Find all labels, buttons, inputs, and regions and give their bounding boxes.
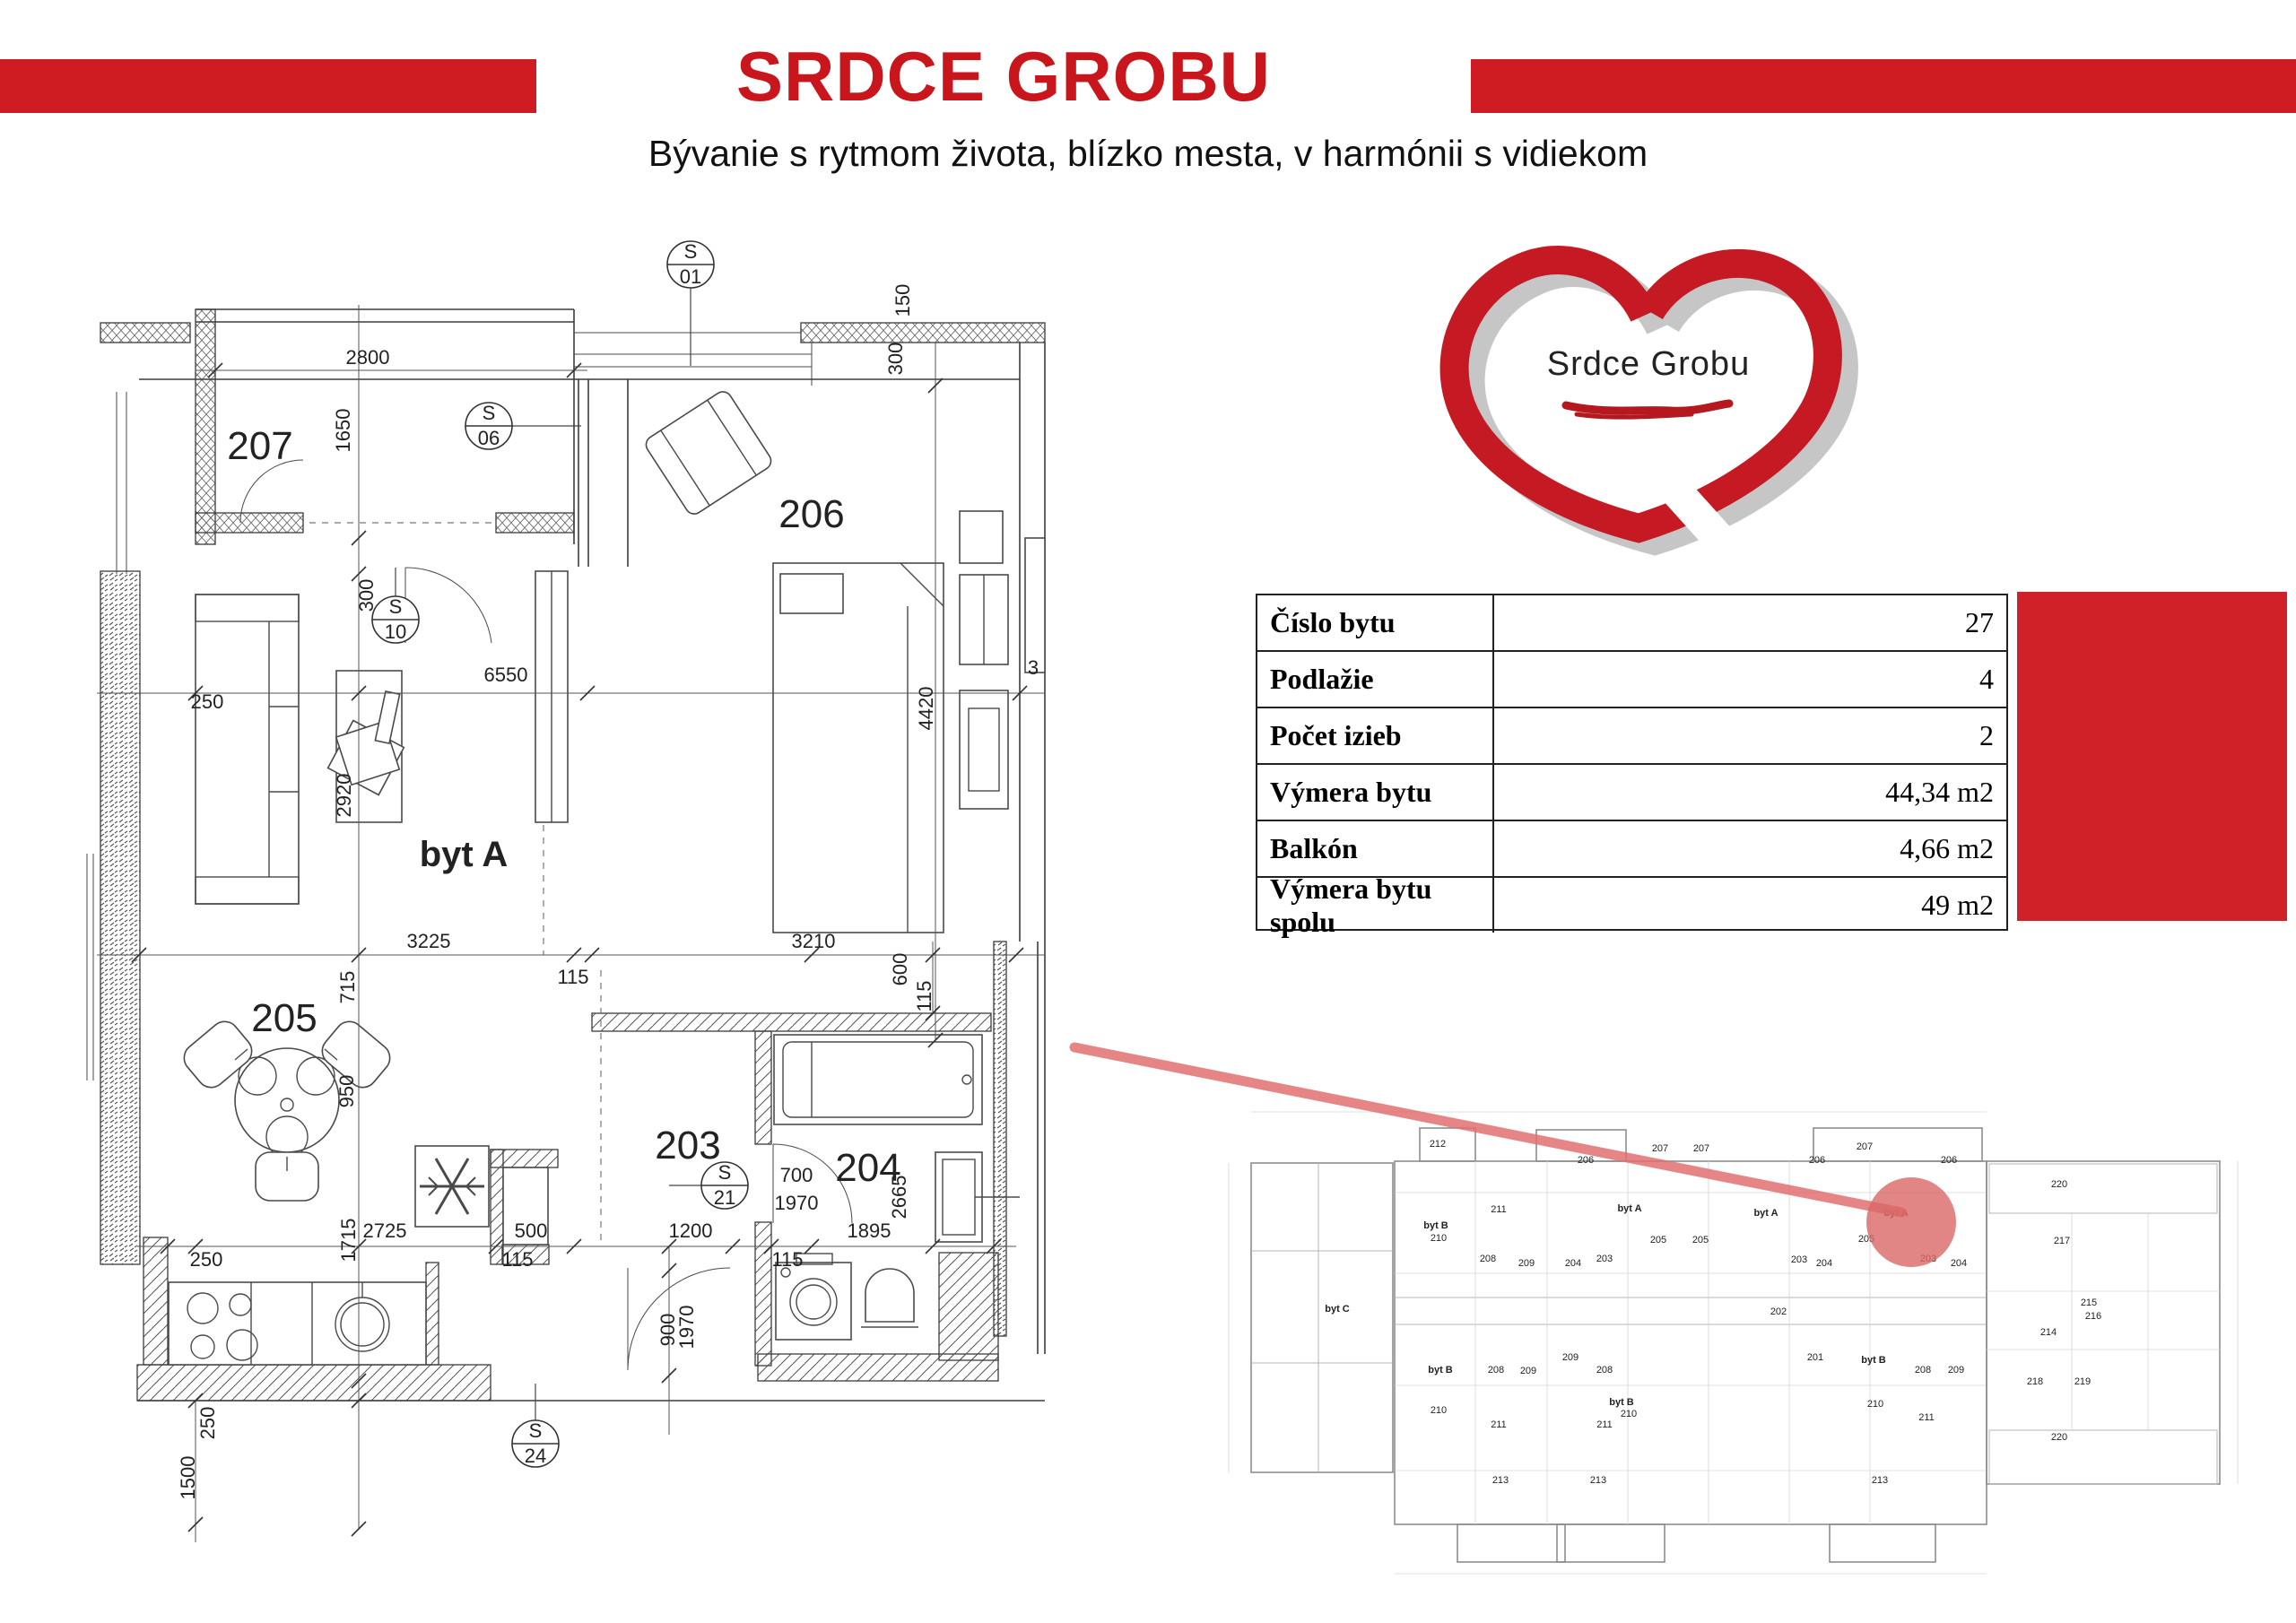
section-symbol-letter: S	[718, 1161, 732, 1184]
heart-logo: Srdce Grobu	[1455, 260, 1844, 560]
dimension-label-vertical: 1650	[332, 409, 354, 453]
dimension-label: 500	[515, 1219, 548, 1242]
dimension-label: 1895	[848, 1219, 891, 1242]
overview-room-label: 206	[1941, 1155, 1957, 1166]
section-symbol-letter: S	[684, 240, 698, 263]
dimension-label-vertical: 2920	[333, 774, 355, 818]
dimension-label: 2800	[346, 346, 390, 369]
overview-room-label: 210	[1431, 1405, 1447, 1416]
dimension-label: 3210	[792, 930, 836, 952]
dimension-label-vertical: 1715	[337, 1219, 360, 1263]
section-symbol-letter: S	[389, 595, 403, 618]
drawings-layer: 207206205203204byt A 2800655025032251153…	[0, 0, 2296, 1623]
overview-room-label: 202	[1770, 1306, 1787, 1317]
section-symbol-letter: S	[483, 402, 496, 424]
dimension-label-vertical: 115	[913, 980, 935, 1011]
overview-room-label: 209	[1520, 1366, 1536, 1376]
logo-underline	[1566, 404, 1729, 411]
overview-room-label: 210	[1621, 1409, 1637, 1419]
overview-room-label: 220	[2051, 1432, 2067, 1443]
overview-room-label: 213	[1492, 1475, 1509, 1486]
overview-room-label: 208	[1480, 1254, 1496, 1264]
overview-room-label: 216	[2085, 1311, 2101, 1322]
overview-room-label: 213	[1590, 1475, 1606, 1486]
overview-room-label: 211	[1491, 1419, 1507, 1430]
overview-room-label: 203	[1791, 1254, 1807, 1265]
dimension-label: 1200	[669, 1219, 713, 1242]
room-number-label: 207	[227, 424, 292, 468]
overview-room-label: 208	[1915, 1365, 1931, 1376]
section-symbol-letter: S	[529, 1419, 543, 1442]
overview-room-label: 206	[1809, 1155, 1825, 1166]
dimension-label-vertical: 1500	[177, 1456, 199, 1500]
dimension-label-vertical: 950	[335, 1075, 358, 1108]
section-symbol-number: 21	[714, 1186, 735, 1209]
dining-table	[178, 1016, 396, 1201]
bed	[773, 563, 944, 933]
overview-room-label: 214	[2040, 1327, 2057, 1338]
overview-room-label: byt A	[1753, 1208, 1778, 1219]
dimension-label-vertical: 300	[355, 579, 378, 612]
section-symbol-number: 24	[525, 1445, 546, 1467]
dimension-label: 115	[557, 966, 588, 988]
dimension-label: 3	[1028, 656, 1039, 679]
overview-room-label: 204	[1951, 1258, 1967, 1269]
overview-room-label: 207	[1857, 1141, 1873, 1152]
overview-room-label: 203	[1596, 1254, 1613, 1264]
overview-room-label: 207	[1693, 1143, 1709, 1154]
dimension-label-vertical: 715	[336, 971, 359, 1004]
overview-room-label: 212	[1430, 1139, 1446, 1150]
logo-text: Srdce Grobu	[1547, 345, 1750, 383]
dimension-label: 115	[501, 1248, 533, 1271]
overview-room-label: 211	[1596, 1419, 1613, 1430]
dimension-label-vertical: 250	[196, 1407, 219, 1440]
dimension-label: 1970	[775, 1192, 819, 1214]
overview-room-label: 211	[1491, 1204, 1507, 1215]
section-symbol-number: 10	[385, 621, 406, 643]
overview-room-label: byt B	[1423, 1220, 1448, 1231]
overview-room-label: 208	[1596, 1365, 1613, 1376]
main-floor-plan: 207206205203204byt A 2800655025032251153…	[87, 240, 1045, 1542]
fridge	[415, 1146, 489, 1227]
dimension-label-vertical: 2665	[888, 1176, 910, 1219]
section-symbol-number: 01	[680, 265, 701, 288]
toilet	[861, 1269, 918, 1327]
logo-underline-stroke2	[1577, 414, 1692, 417]
room-number-label: byt A	[420, 835, 509, 874]
overview-room-label: 219	[2074, 1376, 2091, 1387]
overview-room-label: 201	[1807, 1352, 1823, 1363]
bathtub	[774, 1035, 982, 1124]
overview-room-label: byt B	[1609, 1397, 1634, 1408]
dimension-label: 250	[190, 1248, 223, 1271]
overview-room-label: 206	[1578, 1155, 1594, 1166]
room-number-label: 205	[251, 996, 317, 1040]
overview-room-label: 217	[2054, 1236, 2070, 1246]
overview-room-label: 209	[1562, 1352, 1578, 1363]
overview-room-label: 205	[1692, 1235, 1709, 1245]
overview-floor-plan: 212206207207206207206220211byt B210byt A…	[1074, 1047, 2238, 1574]
room-number-label: 203	[655, 1124, 720, 1167]
overview-room-label: 218	[2027, 1376, 2043, 1387]
dimension-label-vertical: 1970	[675, 1306, 698, 1350]
highlight-connector-line	[1074, 1047, 1901, 1212]
overview-room-label: 208	[1488, 1365, 1504, 1376]
overview-room-label: 211	[1918, 1412, 1935, 1423]
dimension-label: 115	[771, 1248, 803, 1271]
wardrobes	[960, 511, 1008, 809]
dimension-label: 2725	[363, 1219, 407, 1242]
overview-room-label: byt B	[1861, 1355, 1886, 1366]
overview-labels: 212206207207206207206220211byt B210byt A…	[1325, 1139, 2101, 1486]
armchair	[643, 388, 775, 517]
dimension-label: 6550	[484, 664, 528, 686]
dimension-label-vertical: 4420	[915, 687, 937, 731]
washbasin	[935, 1152, 1020, 1242]
overview-room-label: 204	[1565, 1258, 1581, 1269]
overview-room-label: 205	[1650, 1235, 1666, 1245]
highlight-circle	[1866, 1177, 1956, 1267]
overview-room-label: 209	[1518, 1258, 1535, 1269]
sofa	[196, 595, 299, 904]
flyer-page: { "header": { "title": "SRDCE GROBU", "s…	[0, 0, 2296, 1623]
overview-room-label: 213	[1872, 1475, 1888, 1486]
kitchen-counter	[169, 1282, 426, 1365]
overview-room-label: byt A	[1617, 1203, 1641, 1214]
room-number-label: 206	[778, 492, 844, 536]
overview-room-label: 210	[1867, 1399, 1883, 1410]
dimension-label: 700	[780, 1164, 813, 1186]
overview-room-label: 220	[2051, 1179, 2067, 1190]
overview-room-label: 207	[1652, 1143, 1668, 1154]
dimension-label: 3225	[407, 930, 451, 952]
overview-room-label: 215	[2081, 1298, 2097, 1308]
dimension-label-vertical: 600	[889, 953, 911, 986]
overview-room-label: 210	[1431, 1233, 1447, 1244]
section-symbol-number: 06	[478, 427, 500, 449]
overview-room-label: byt B	[1428, 1365, 1453, 1376]
dimension-label-vertical: 300	[884, 343, 907, 376]
dimension-label-vertical: 150	[891, 284, 914, 317]
overview-room-label: 204	[1816, 1258, 1832, 1269]
overview-room-label: byt C	[1325, 1304, 1350, 1315]
overview-room-label: 209	[1948, 1365, 1964, 1376]
dimension-label: 250	[191, 690, 224, 713]
